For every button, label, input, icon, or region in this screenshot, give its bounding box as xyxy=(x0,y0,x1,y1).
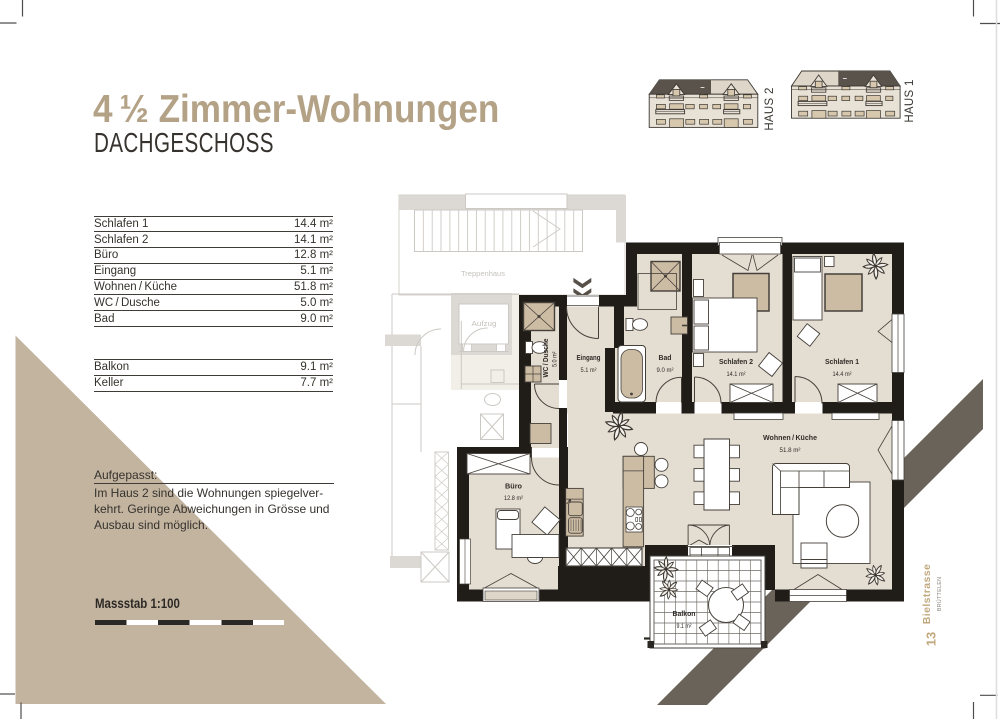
svg-text:51.8 m²: 51.8 m² xyxy=(780,447,802,454)
svg-text:14.1 m²: 14.1 m² xyxy=(727,371,747,378)
svg-text:Wohnen / Küche: Wohnen / Küche xyxy=(763,433,817,442)
svg-text:9.1 m²: 9.1 m² xyxy=(677,623,693,630)
svg-text:Schlafen 1: Schlafen 1 xyxy=(825,357,859,366)
svg-text:Treppenhaus: Treppenhaus xyxy=(461,269,505,278)
svg-text:12.8 m²: 12.8 m² xyxy=(504,495,524,502)
svg-text:Eingang: Eingang xyxy=(577,353,601,362)
svg-text:9.0 m²: 9.0 m² xyxy=(657,367,675,374)
svg-text:5.0 m²: 5.0 m² xyxy=(552,352,559,368)
svg-text:Büro: Büro xyxy=(505,482,523,491)
svg-text:Aufzug: Aufzug xyxy=(472,319,497,328)
svg-text:Balkon: Balkon xyxy=(673,609,696,618)
svg-text:14.4 m²: 14.4 m² xyxy=(833,371,853,378)
svg-text:WC / Dusche: WC / Dusche xyxy=(543,338,550,377)
svg-text:Bad: Bad xyxy=(659,353,672,362)
svg-text:5.1 m²: 5.1 m² xyxy=(581,367,598,374)
svg-text:Schlafen 2: Schlafen 2 xyxy=(719,357,753,366)
